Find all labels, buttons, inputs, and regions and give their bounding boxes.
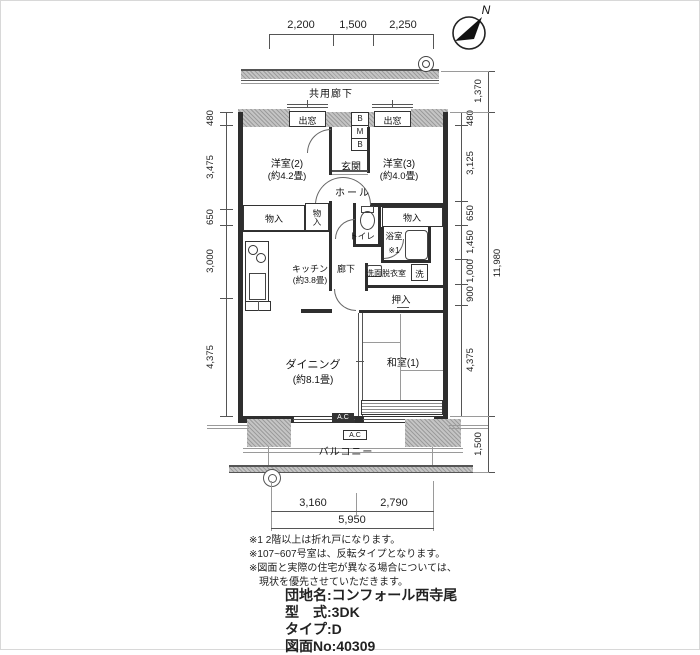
dim-tick	[373, 34, 374, 46]
kitchen-door-arc	[334, 289, 356, 311]
wall	[301, 309, 332, 313]
corridor-label: 共用廊下	[303, 85, 359, 100]
dim-tick	[433, 34, 434, 49]
dim-right-4375: 4,375	[465, 338, 477, 382]
info-label: タイプ	[285, 621, 327, 637]
info-value: D	[332, 621, 342, 637]
bath-note-label: ※1	[385, 246, 403, 255]
info-row-plan-type: タイプ:D	[285, 621, 457, 638]
closet-right-label: 物入	[394, 211, 430, 224]
info-value: 3DK	[332, 604, 360, 620]
dim-tick	[333, 34, 334, 46]
fusuma-line	[358, 313, 359, 416]
balcony-pillar-right	[405, 419, 461, 447]
dim-line-bottom	[271, 511, 434, 512]
info-label: 型 式	[285, 604, 327, 620]
entrance-step	[332, 174, 368, 175]
kitchen-sink-icon	[249, 273, 266, 300]
oshiire-door-tick	[397, 307, 409, 308]
tatami-line	[400, 314, 401, 400]
window-tick	[392, 100, 393, 107]
meter-box-b2: B	[352, 139, 368, 151]
window-tick	[307, 100, 308, 107]
toilet-icon	[360, 211, 375, 230]
info-label: 図面No	[285, 638, 332, 654]
bay-window-left-label: 出窓	[291, 114, 324, 127]
entrance-door-arc	[307, 129, 331, 153]
western-room3-size: (約4.0畳)	[367, 168, 431, 182]
western-room2-size: (約4.2畳)	[255, 168, 319, 182]
dining-size: (約8.1畳)	[285, 371, 341, 386]
wall	[359, 310, 443, 313]
dim-bottom-2: 2,790	[369, 497, 419, 509]
kitchen-cabinet-divider	[258, 301, 259, 311]
ac-unit-lower: A.C	[343, 430, 367, 440]
dim-tick	[220, 209, 233, 210]
dim-right-outer-11980: 11,980	[492, 241, 504, 285]
balcony-label: バルコニー	[316, 443, 376, 458]
dim-tick	[220, 298, 233, 299]
wall	[353, 244, 381, 247]
wall-right	[443, 112, 448, 423]
ac-lower-label: A.C	[349, 432, 361, 439]
dim-tick	[220, 125, 233, 126]
window-line	[372, 107, 413, 108]
dim-extension	[271, 481, 272, 531]
dim-left-480: 480	[205, 96, 217, 140]
fusuma-tick	[356, 361, 364, 362]
toilet-label: トイレ	[345, 230, 379, 242]
tatami-line	[401, 370, 443, 371]
property-info: 団地名:コンフォール西寺尾 型 式:3DK タイプ:D 図面No:40309	[285, 587, 457, 655]
corridor-edge	[241, 83, 439, 84]
dim-top-2: 1,500	[328, 19, 378, 31]
bath-label: 浴室	[381, 230, 407, 242]
dim-extension	[473, 472, 489, 473]
closet-left-vertical-label: 物入	[309, 205, 325, 229]
floor-plan: 2,200 1,500 2,250 N 共用廊下 出窓 出窓 B M B	[1, 1, 700, 651]
tatami-line	[363, 342, 400, 343]
window-line	[287, 107, 328, 108]
entrance-step	[332, 170, 368, 172]
washroom-label: 洗面脱衣室	[361, 268, 411, 279]
dim-line-bottom-total	[271, 528, 434, 529]
info-row-type: 型 式:3DK	[285, 604, 457, 621]
dim-bottom-1: 3,160	[288, 497, 338, 509]
oshiire-label: 押入	[381, 292, 421, 306]
kitchen-size: (約3.8畳)	[283, 274, 337, 286]
stove-icon	[256, 253, 266, 263]
info-value: 40309	[336, 638, 375, 654]
balcony-post	[268, 447, 269, 467]
dim-tick	[220, 416, 233, 417]
bay-window-right-label: 出窓	[376, 114, 409, 127]
engawa-strip	[361, 400, 443, 415]
dim-tick	[220, 112, 233, 113]
compass-north-label: N	[479, 3, 493, 17]
dining-label: ダイニング	[283, 356, 343, 372]
hallway-label: 廊下	[332, 262, 360, 275]
note-line-2: ※107~607号室は、反転タイプとなります。	[249, 548, 445, 562]
dim-line	[269, 34, 433, 35]
ac-unit-upper: A.C	[332, 413, 354, 422]
corridor-edge	[241, 80, 439, 81]
note-line-1: ※1 2階以上は折れ戸になります。	[249, 534, 400, 548]
dim-top-1: 2,200	[276, 19, 326, 31]
wall-left	[238, 112, 243, 423]
dim-left-4375: 4,375	[205, 335, 217, 379]
dim-line-right-inner	[461, 112, 462, 416]
ac-upper-label: A.C	[337, 414, 349, 421]
dim-tick	[269, 34, 270, 49]
toilet-tank	[361, 206, 374, 213]
info-row-drawing-no: 図面No:40309	[285, 638, 457, 655]
note-line-3: ※図面と実際の住宅が異なる場合については、	[249, 562, 457, 576]
dim-bottom-total: 5,950	[327, 514, 377, 526]
dim-extension	[433, 481, 434, 531]
dim-left-3475: 3,475	[205, 145, 217, 189]
balcony-pillar-left	[247, 419, 291, 447]
info-value: コンフォール西寺尾	[332, 587, 458, 603]
wall	[365, 285, 443, 288]
dim-line-left	[226, 112, 227, 416]
wall	[428, 227, 431, 263]
dim-right-900: 900	[465, 272, 477, 316]
drain-icon-inner	[422, 60, 430, 68]
drain-icon-inner	[268, 474, 277, 483]
info-label: 団地名	[285, 587, 327, 603]
wall	[325, 112, 353, 127]
balcony-rail	[207, 425, 249, 426]
balcony-post	[432, 447, 433, 467]
dim-right-outer-1500: 1,500	[473, 422, 485, 466]
dim-line-right-outer	[488, 71, 489, 473]
laundry-label: 洗	[411, 268, 428, 280]
meter-box-b1: B	[352, 113, 368, 126]
dim-extension	[450, 416, 489, 417]
dim-tick	[220, 225, 233, 226]
dim-right-outer-1370: 1,370	[473, 69, 485, 113]
corridor-band	[241, 71, 439, 79]
dim-right-3125: 3,125	[465, 141, 477, 185]
hall-label: ホール	[335, 184, 371, 199]
japanese-room1-label: 和室(1)	[381, 354, 425, 369]
meter-box-m: M	[352, 126, 368, 139]
balcony-rail	[207, 428, 249, 429]
info-row-danchi: 団地名:コンフォール西寺尾	[285, 587, 457, 604]
bathtub-icon	[405, 230, 428, 260]
wall	[381, 260, 431, 263]
dim-left-650: 650	[205, 195, 217, 239]
dim-top-3: 2,250	[378, 19, 428, 31]
wall	[238, 109, 290, 127]
closet-left-label: 物入	[256, 212, 292, 225]
dim-left-3000: 3,000	[205, 239, 217, 283]
